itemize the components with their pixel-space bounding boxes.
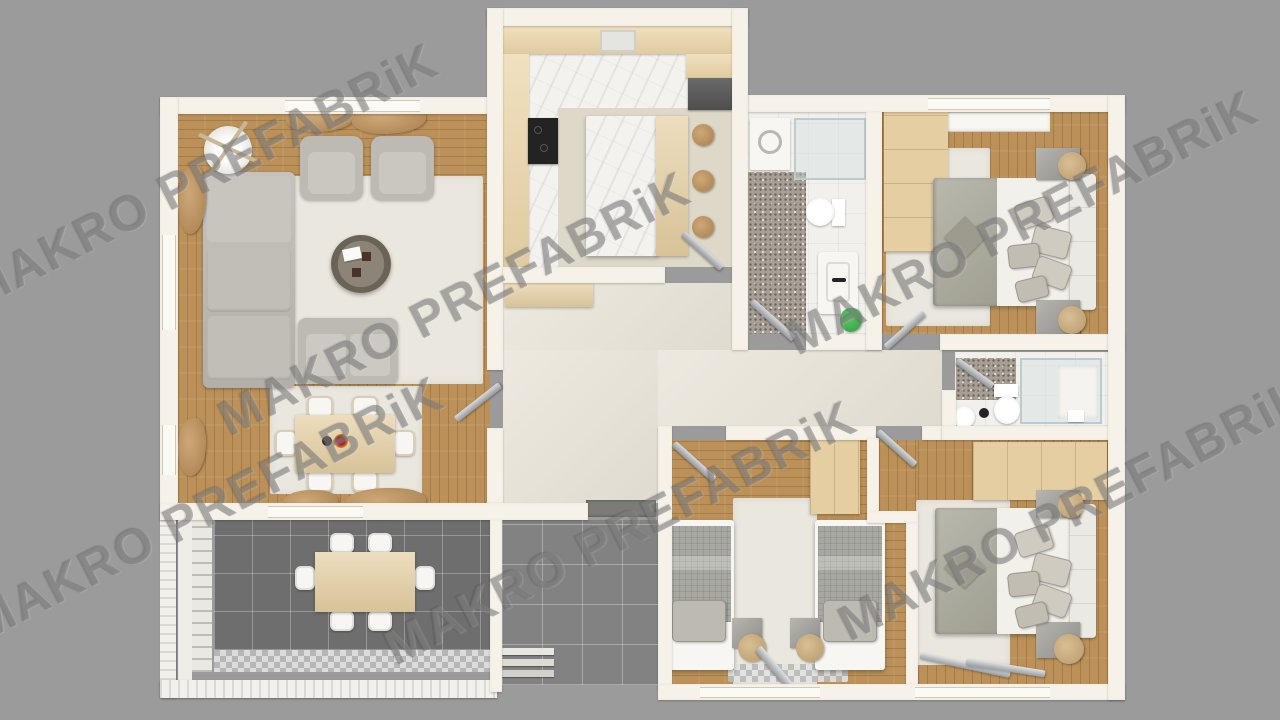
corner-sofa-cushion — [207, 248, 291, 312]
cooktop-stove — [528, 118, 558, 164]
single-bed-blanket-fold — [818, 556, 882, 570]
porch-step — [502, 648, 554, 655]
table-lamp — [1058, 492, 1084, 518]
wall-twin-left — [658, 426, 672, 688]
shower-enclosure — [794, 118, 866, 180]
dining-chair — [275, 430, 297, 456]
wall-twin-bed3-jog — [867, 511, 918, 523]
dining-chair — [307, 470, 333, 492]
armchair-cushion — [379, 152, 426, 194]
cooktop-burner — [534, 126, 542, 134]
armchair-cushion — [308, 152, 355, 194]
toilet-bowl — [994, 396, 1020, 424]
bedroom1-top-window — [928, 98, 1050, 110]
single-bed-pillow — [672, 600, 726, 642]
wall-bed3-top — [922, 426, 942, 440]
terrace-border-mosaic — [214, 650, 490, 672]
coffee-table-decor — [352, 268, 361, 277]
toilet-bowl — [806, 198, 834, 226]
fridge — [688, 78, 732, 110]
bed-headboard — [1070, 504, 1096, 638]
shower-faucet — [1068, 410, 1084, 422]
wall-twin-top — [726, 426, 876, 440]
kitchen-sink — [600, 30, 636, 52]
corner-sofa-chaise — [207, 176, 291, 242]
wall-kitchen-right — [732, 8, 748, 350]
washing-machine-door — [758, 130, 782, 154]
living-left-window — [162, 425, 176, 475]
bedroom3-bottom-window — [915, 687, 1050, 698]
coffee-table-decor — [362, 252, 371, 261]
kitchen-counter-right — [686, 54, 732, 78]
wall-twin-bed3-divider — [867, 438, 879, 518]
living-top-window — [285, 100, 420, 112]
single-bed-pillow — [823, 600, 877, 642]
wall-terrace-porch-divider — [490, 520, 502, 692]
table-lamp — [1058, 306, 1086, 334]
waste-bin — [979, 408, 989, 418]
bar-stool — [692, 124, 714, 146]
outdoor-chair — [330, 533, 354, 553]
loveseat-cushion — [350, 334, 390, 376]
outdoor-chair — [295, 566, 315, 590]
corner-sofa-cushion — [207, 316, 291, 380]
vanity-faucet — [832, 278, 846, 282]
kitchen-island — [586, 116, 658, 256]
twin-bottom-window — [700, 687, 820, 698]
outdoor-table — [315, 552, 415, 612]
pedestal-sink — [953, 406, 975, 428]
outdoor-chair — [368, 533, 392, 553]
living-left-window — [162, 235, 176, 330]
terrace-border-strip — [192, 520, 212, 672]
outdoor-chair — [330, 611, 354, 631]
living-terrace-window — [268, 506, 363, 518]
hall-sideboard — [505, 283, 593, 307]
table-lamp — [1054, 634, 1084, 664]
pouf — [796, 634, 824, 662]
dining-centerpiece-bowl — [322, 436, 332, 446]
bed-headboard — [1070, 174, 1096, 310]
wall-kitchen-top — [487, 8, 748, 26]
single-bed-blanket-fold — [667, 556, 731, 570]
wall-bath2-left — [942, 390, 956, 426]
terrace-railing-bottom — [160, 680, 497, 698]
bar-stool — [692, 170, 714, 192]
dining-chair — [393, 430, 415, 456]
terrace-railing-left — [160, 520, 176, 698]
outdoor-chair — [415, 566, 435, 590]
wall-bath2-bottom — [942, 426, 1125, 440]
kitchen-counter-left — [503, 54, 529, 267]
bar-stool — [692, 216, 714, 238]
wall-living-bottom — [160, 503, 588, 520]
vanity-basin — [826, 262, 850, 302]
porch-step — [502, 659, 554, 666]
cooktop-burner — [540, 144, 548, 152]
table-lamp — [1058, 152, 1086, 180]
outdoor-chair — [368, 611, 392, 631]
twin-wardrobe — [810, 438, 860, 514]
wall-bed3-left — [906, 523, 918, 685]
wall-kitchen-left — [487, 8, 503, 370]
wall-living-hall-lower — [487, 428, 503, 503]
wall-right-outer — [1108, 95, 1125, 700]
terrace-deck-edge — [178, 520, 192, 680]
wall-kitchen-bottom — [503, 267, 665, 283]
floorplan-render: MAKRO PREFABRiK MAKRO PREFABRiK MAKRO PR… — [0, 0, 1280, 720]
entry-doormat — [586, 500, 656, 517]
wall-bed1-bottom — [940, 334, 1125, 350]
wall-bath1-bed1-divider — [866, 112, 882, 350]
corridor-floor — [658, 350, 942, 426]
coffee-table — [331, 235, 391, 293]
hallway-floor-lower — [503, 350, 658, 503]
loveseat-cushion — [306, 334, 346, 376]
dining-centerpiece-flowers — [334, 434, 348, 448]
porch-step — [502, 670, 554, 677]
